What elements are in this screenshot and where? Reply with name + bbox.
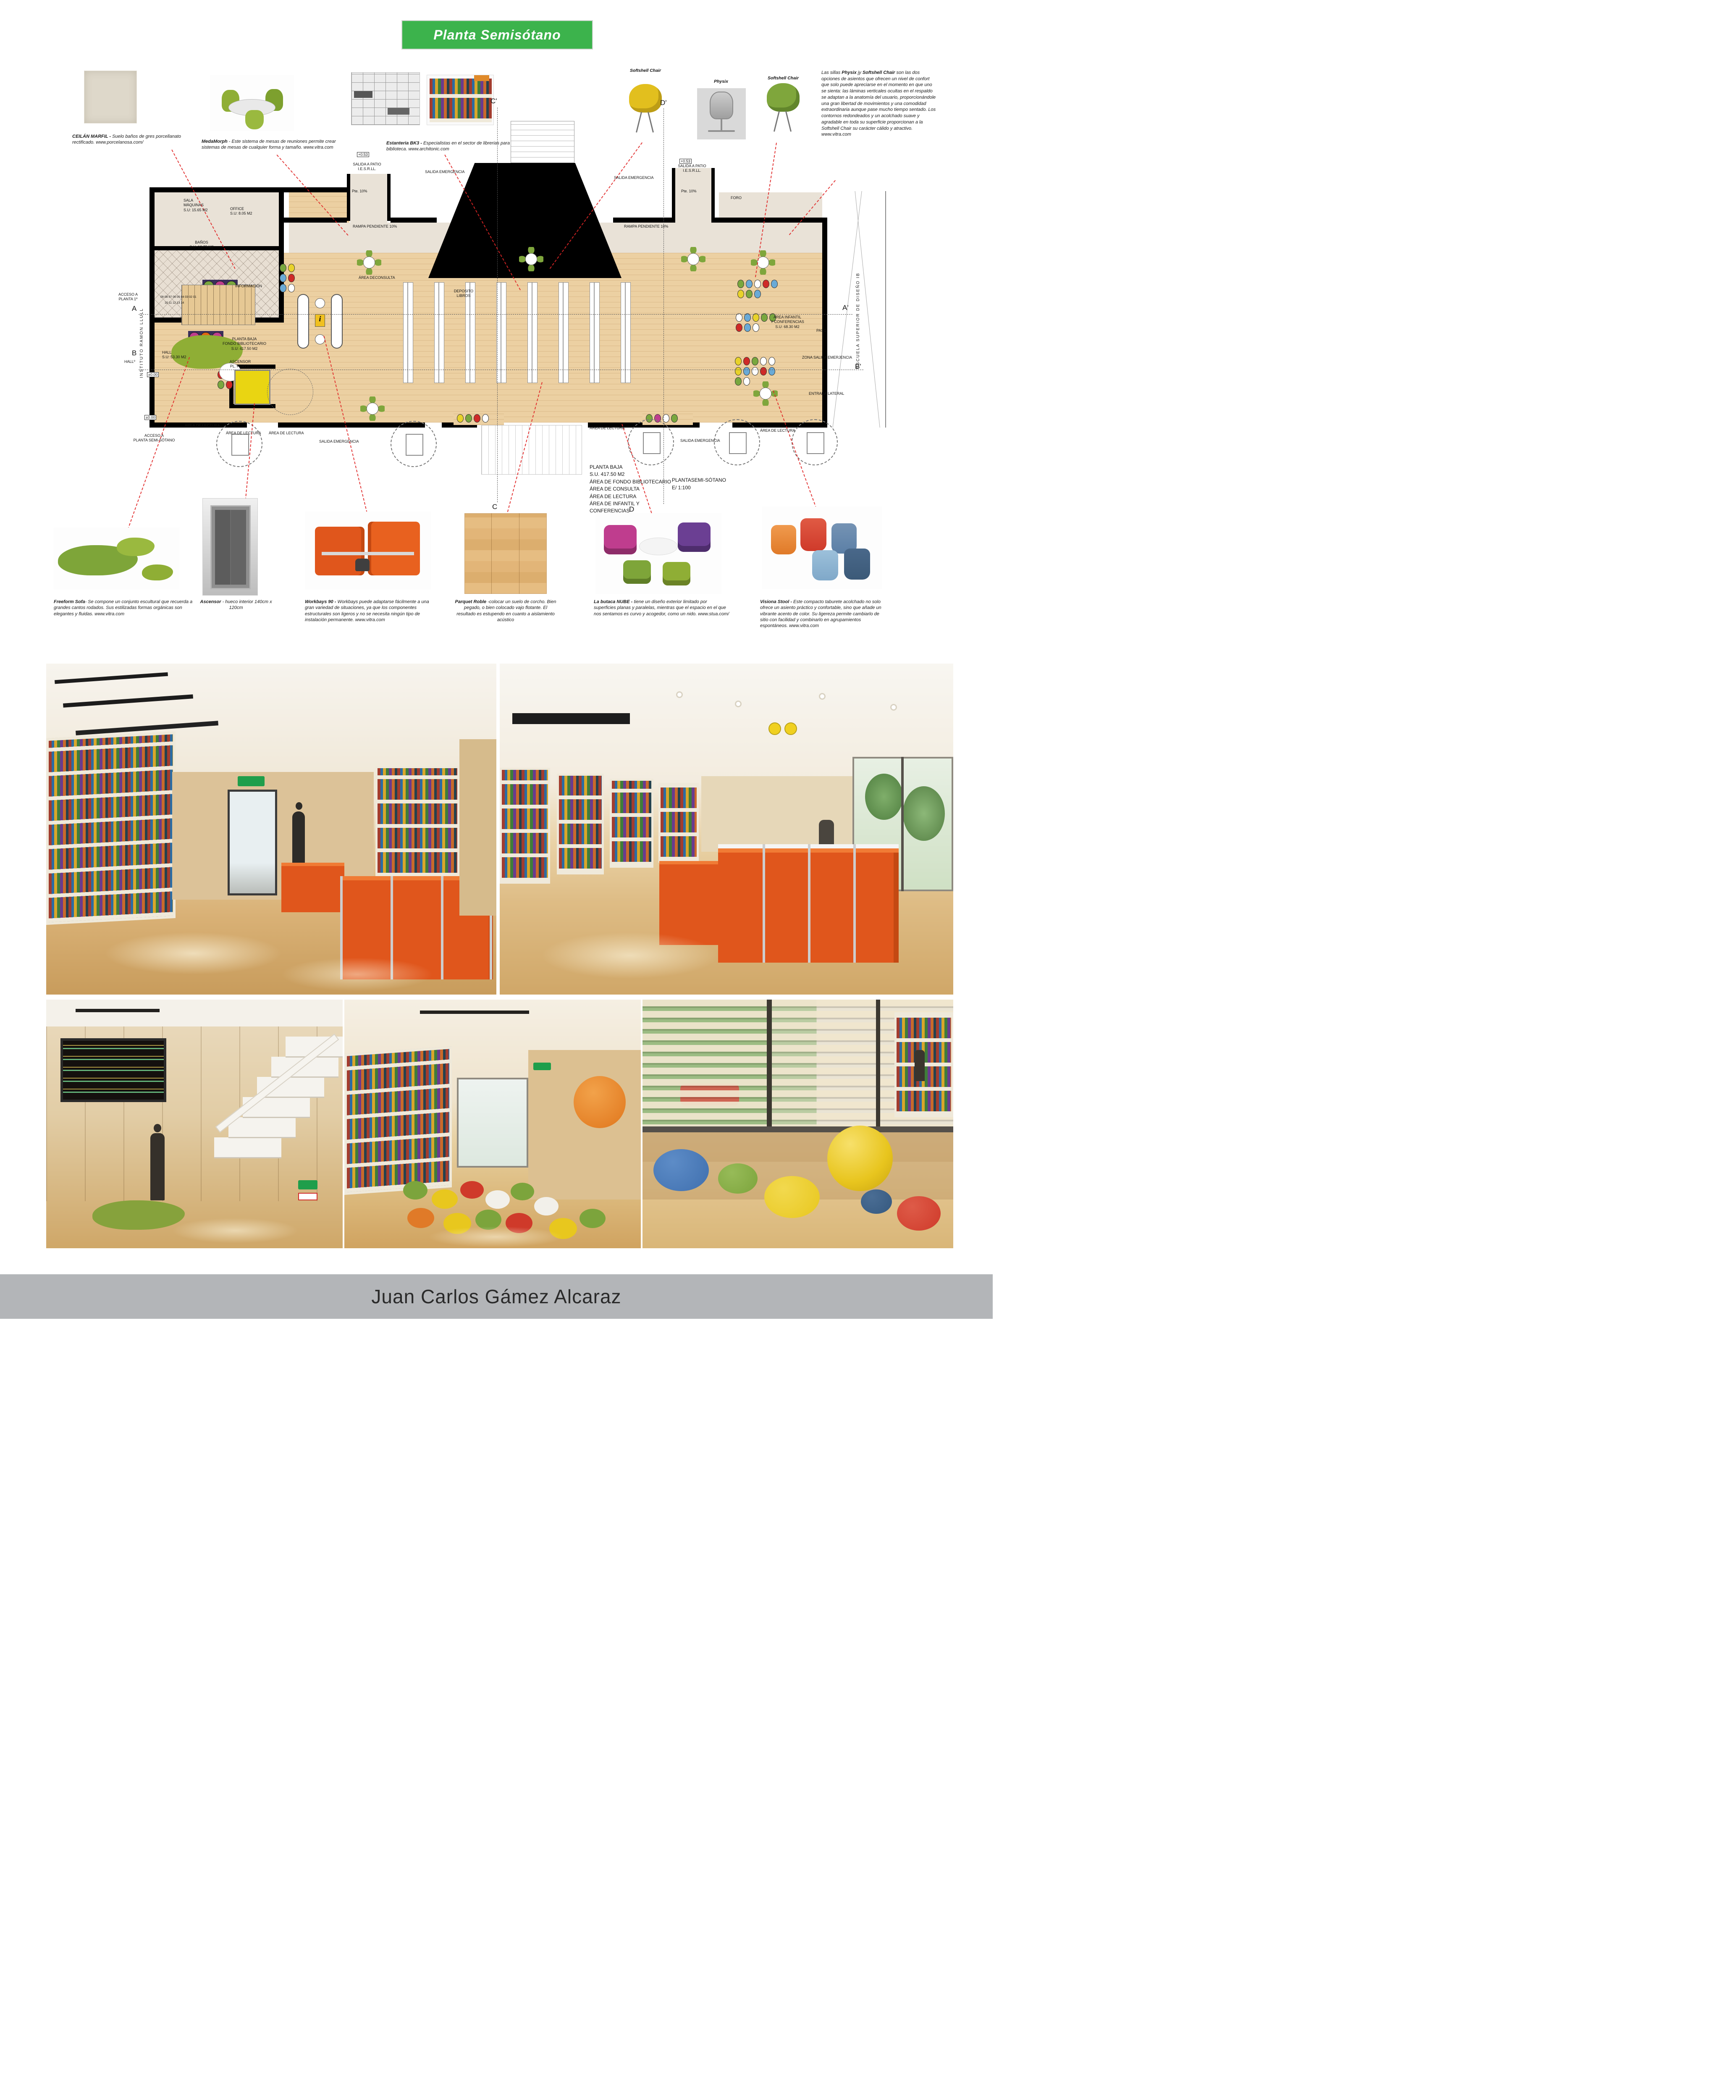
plan-label-pte10: Pte. 10%: [681, 189, 697, 194]
exit-sign: [298, 1180, 317, 1189]
bookshelf-row: [557, 774, 604, 874]
parquet-seam: [519, 513, 519, 594]
plan-round-table: [681, 247, 705, 271]
scale-block: PLANTASEMI-SÓTANO E/ 1:100: [672, 476, 747, 491]
info-icon-glyph: i: [319, 315, 321, 323]
section-marker: A: [132, 304, 136, 313]
ceiling-spot: [819, 693, 826, 700]
plan-book-stack: [434, 282, 444, 383]
section-marker: B: [132, 349, 136, 357]
plan-info-desk: i: [296, 292, 347, 355]
green-sofa: [92, 1200, 185, 1230]
nube-table: [639, 538, 678, 555]
plan-wall: [347, 174, 350, 221]
bk3-shelf-photo-gray: [351, 72, 420, 125]
orange-desk-main: [718, 844, 899, 963]
section-line-c: [497, 108, 498, 502]
plan-label-instituto: INSTITUTO RAMON LLULL: [139, 235, 144, 378]
plan-round-table: [519, 247, 543, 271]
person-head: [154, 1124, 161, 1132]
section-marker: C': [490, 97, 497, 105]
plan-label-acceso-p1: ACCESO A PLANTA 1º: [105, 292, 151, 302]
render-photo-reading-hall: [46, 664, 496, 995]
exit-door: [228, 790, 277, 895]
caption-parquet: Parquet Roble -colocar un suelo de corch…: [454, 599, 557, 623]
window-sill: [642, 1126, 953, 1132]
bookshelf-wall: [46, 732, 176, 925]
visiona-photo: [762, 507, 882, 589]
right-wall-wood: [459, 739, 496, 916]
chair-base: [708, 130, 735, 132]
para-seg: Las sillas: [821, 70, 842, 75]
freeform-shape: [117, 538, 155, 556]
ascensor-door-frame: [210, 505, 251, 589]
plan-label-ascensor: ASCENSOR PL. PISO 1º: [215, 360, 265, 369]
plan-label-consulta: ÁREA DECONSULTA: [359, 276, 395, 280]
tree-blob: [865, 774, 903, 820]
medamorph-chair: [245, 110, 264, 129]
window-frame: [876, 1000, 880, 1130]
plan-label-rampa: RAMPA PENDIENTE 10%: [353, 224, 397, 229]
stool-cluster: [734, 356, 776, 386]
plan-label-banos: BAÑOS S.U: 13.75 M2: [176, 240, 227, 250]
desk-post: [853, 844, 856, 963]
parquet-seam: [491, 513, 492, 594]
plan-label-lectura: ÁREA DE LECTURA: [226, 431, 261, 436]
display-screen: [60, 1038, 166, 1102]
chair-leg: [636, 112, 642, 132]
plan-label-lectura: ÁREA DE LECTURA: [590, 426, 625, 430]
plan-wall: [284, 187, 349, 192]
plan-book-stack: [621, 282, 631, 383]
floor-glow: [105, 932, 281, 974]
yellow-sphere-lamp: [827, 1126, 893, 1191]
plan-light-well: [391, 421, 437, 467]
floor-glow: [172, 1218, 298, 1243]
ceiling-light-slot: [76, 1009, 160, 1012]
plan-patio-stair: [511, 121, 574, 163]
chair-leg: [774, 111, 780, 131]
plan-label-informacion: INFORMACIÓN: [235, 284, 262, 289]
desk-post: [441, 876, 443, 979]
stool-cluster: [456, 413, 502, 423]
planta-baja-block: PLANTA BAJA S.U. 417.50 M2 ÁREA DE FONDO…: [590, 464, 682, 515]
para-seg: jy: [857, 70, 863, 75]
staircase: [214, 1016, 343, 1168]
caption-ascensor-name: Ascensor: [200, 599, 221, 604]
plan-label-entrada: ENTRADA LATERAL: [809, 391, 844, 396]
plan-wall: [149, 187, 285, 192]
pouf: [407, 1208, 434, 1228]
window-frame: [767, 1000, 772, 1130]
window-back: [457, 1078, 528, 1168]
plan-wall: [711, 168, 715, 221]
caption-workbays-name: Workbays 90 -: [305, 599, 337, 604]
plan-label-office: OFFICE S.U: 8.05 M2: [230, 207, 252, 216]
plan-label-lectura: ÁREA DE LECTURA: [185, 423, 220, 428]
plan-central-stair: [481, 425, 582, 475]
plan-wall: [711, 218, 827, 223]
workbays-pod: [368, 522, 420, 575]
caption-medamorph-name: MedaMorph: [202, 139, 228, 144]
plan-book-stack: [590, 282, 600, 383]
bookshelf-wall: [344, 1046, 452, 1195]
caption-ceilan: CEILÁN MARFIL - Suelo baños de gres porc…: [72, 134, 203, 146]
section-marker: A': [842, 303, 849, 312]
caption-visiona-name: Visiona Stool -: [760, 599, 793, 604]
caption-ascensor-text: - hueco interior 140cm x 120cm: [221, 599, 272, 610]
stool-cluster: [737, 279, 779, 299]
ceiling-spot: [676, 691, 683, 698]
info-desk-counter: [331, 294, 343, 349]
plan-label-hall-peq: HALLº: [124, 360, 135, 364]
render-photo-kids-area: [344, 1000, 641, 1248]
pouf: [403, 1181, 427, 1200]
softshell-right-label: Softshell Chair: [756, 76, 810, 81]
caption-freeform: Freeform Sofa- Se compone un conjunto es…: [54, 599, 193, 617]
plan-wall: [613, 218, 675, 223]
pouf: [460, 1181, 484, 1199]
plan-stair-numbers: 09 08 07 06 05 04 03 02 01: [160, 296, 197, 299]
desk-post: [763, 844, 765, 963]
plan-room-sala-maquinas: [155, 192, 279, 246]
level-tag: +0.53: [679, 159, 692, 164]
plan-label-salida-patio: SALIDA A PATIO I.E.S.R.LL.: [666, 164, 718, 173]
plan-wall: [284, 218, 347, 223]
footer-bar: Juan Carlos Gámez Alcaraz: [0, 1274, 993, 1319]
caption-workbays: Workbays 90 - Workbays puede adaptarse f…: [305, 599, 438, 623]
plan-label-escuela: ESCUELA SUPERIOR DE DISEÑO IB: [856, 230, 860, 369]
plan-label-lectura: ÁREA DE LECTURA: [269, 431, 304, 436]
floor-glow: [281, 958, 433, 991]
section-marker: C: [492, 502, 497, 511]
render-photo-window-bench: [642, 1000, 953, 1248]
plan-stair-left: [181, 285, 255, 325]
window-mullion: [901, 757, 904, 891]
render-photo-stacks-desks: [500, 664, 953, 995]
render-photo-stair-lounge: [46, 1000, 343, 1248]
caption-ceilan-name: CEILÁN MARFIL -: [72, 134, 112, 139]
plan-wall: [149, 187, 155, 428]
caption-bk3-name: Estanteria BK3 -: [386, 141, 423, 146]
plan-patio-stub-right: [675, 168, 711, 223]
chair-shell: [629, 84, 662, 113]
para-physix: Physix: [842, 70, 856, 75]
exit-sign: [533, 1063, 551, 1070]
plan-label-salida-emergencia: SALIDA EMERGENCIA: [425, 170, 465, 174]
cushion: [861, 1189, 892, 1214]
chairs-description: Las sillas Physix jy Softshell Chair son…: [821, 70, 938, 138]
caption-parquet-name: Parquet Roble: [455, 599, 487, 604]
plan-label-lectura: ÁREA DE LECTURA: [760, 428, 795, 433]
workbays-photo: [305, 512, 431, 590]
level-tag: ±0.00: [147, 372, 159, 377]
visiona-stool: [800, 518, 826, 551]
page-title: Planta Semisótano: [433, 27, 561, 43]
plan-label-planta-fondo: PLANTA BAJA FONDO BIBLIOTECARIO S.U: 417…: [210, 337, 279, 351]
plan-book-stack: [527, 282, 538, 383]
ascensor-door: [215, 510, 246, 585]
signage-bar: [512, 713, 630, 724]
plan-label-rampa: RAMPA PENDIENTE 10%: [624, 224, 668, 229]
floor-glow: [542, 932, 718, 979]
caption-visiona: Visiona Stool - Este compacto taburete a…: [760, 599, 889, 629]
softshell-chair-yellow-photo: [624, 82, 667, 136]
cushion: [897, 1196, 941, 1231]
caption-nube-name: La butaca NUBE -: [594, 599, 634, 604]
level-tag: ±0.00: [144, 415, 156, 420]
person-head: [296, 802, 302, 810]
section-line-d: [663, 108, 664, 504]
plan-wall: [387, 174, 391, 221]
ceiling-spot: [890, 704, 897, 711]
caption-bk3: Estanteria BK3 - Especialistas en el sec…: [386, 140, 522, 152]
plan-light-well: [714, 419, 760, 465]
para-softshell: Softshell Chair: [863, 70, 895, 75]
orange-desk: [281, 863, 344, 912]
plan-label-salida-emergencia: SALIDA EMERGENCIA: [319, 439, 359, 444]
nube-photo: [595, 513, 721, 594]
stair-step: [214, 1137, 281, 1158]
ascensor-photo: [202, 498, 258, 596]
nube-armchair: [604, 525, 637, 554]
caption-ascensor: Ascensor - hueco interior 140cm x 120cm: [194, 599, 278, 611]
plan-label-sala-maquinas: SALA MÁQUINAS S.U: 15.65 M2: [184, 198, 208, 213]
bookshelf-row: [610, 779, 653, 868]
caption-medamorph: MedaMorph - Este sistema de mesas de reu…: [202, 139, 336, 151]
orange-circle-panel: [574, 1076, 626, 1128]
chair-leg: [648, 112, 654, 132]
safety-sign: [298, 1193, 317, 1200]
bookshelf-mid: [375, 766, 459, 879]
person-silhouette: [915, 1050, 925, 1081]
plan-patio-stub-left: [350, 174, 387, 223]
workbays-desk: [322, 552, 414, 555]
ceiling-light-slot: [420, 1011, 529, 1014]
bk3-shelf-photo-color: [427, 75, 494, 125]
plan-elevator-swing: [267, 369, 313, 415]
caption-freeform-name: Freeform Sofa: [54, 599, 85, 604]
chair-back: [710, 92, 733, 119]
stair-step: [228, 1117, 296, 1138]
chair-leg: [785, 111, 792, 131]
plan-round-table: [751, 250, 775, 275]
desk-post: [808, 844, 810, 963]
nube-armchair: [623, 560, 651, 584]
medamorph-photo: [210, 75, 294, 131]
plan-label-foro: FORO: [731, 196, 742, 200]
bk3-color-books: [430, 79, 492, 122]
plan-label-salida-emergencia: SALIDA EMERGENCIA: [614, 176, 654, 180]
pouf: [511, 1183, 534, 1200]
plan-round-table: [360, 396, 385, 421]
level-tag: +0.53: [357, 152, 369, 157]
cushion: [764, 1176, 820, 1218]
plan-book-stack: [559, 282, 569, 383]
bookshelf-row: [658, 783, 699, 863]
exit-sign: [238, 776, 265, 786]
info-desk-chair: [315, 298, 325, 308]
section-marker: D': [660, 98, 667, 107]
orange-desk-wing: [659, 861, 718, 945]
tree-blob: [903, 786, 945, 841]
pouf: [432, 1189, 458, 1209]
section-line-b: [139, 370, 863, 370]
plan-wall: [279, 187, 284, 323]
parquet-photo: [464, 513, 547, 594]
cushion: [653, 1149, 709, 1191]
bk3-books: [354, 91, 372, 98]
plan-round-table: [357, 250, 381, 275]
info-desk-counter: [297, 294, 309, 349]
plan-label-hall: HALL S.U: 53.30 M2: [162, 350, 186, 360]
bk3-books: [388, 108, 409, 115]
plan-wall: [672, 168, 675, 221]
softshell-chair-green-photo: [762, 81, 805, 135]
physix-chair-photo: [697, 88, 746, 139]
physix-label: Physix: [698, 79, 744, 84]
workbays-chair: [355, 559, 370, 571]
chair-shell: [767, 83, 800, 112]
plan-book-stack: [496, 282, 506, 383]
info-icon: i: [315, 314, 325, 327]
plan-wall: [391, 218, 437, 223]
stool-cluster: [279, 263, 301, 293]
author-name: Juan Carlos Gámez Alcaraz: [371, 1285, 621, 1308]
title-banner: Planta Semisótano: [401, 20, 593, 50]
ceiling-spot: [735, 701, 742, 707]
freeform-ottoman: [142, 564, 173, 580]
freeform-sofa-photo: [54, 528, 180, 590]
plan-elevator: [234, 370, 270, 405]
bookshelf-row: [500, 768, 550, 884]
softshell-left-label: Softshell Chair: [614, 68, 677, 73]
ceilan-tile-photo: [84, 71, 137, 123]
plan-label-deposito: DEPOSITO LIBROS: [446, 289, 481, 299]
nube-armchair: [663, 562, 690, 585]
plan-label-acceso-semi: ACCESO A PLANTA SEMI-SÓTANO: [116, 433, 192, 443]
bk3-orange-box: [474, 75, 489, 81]
section-line-a: [139, 314, 852, 315]
cushion: [718, 1163, 758, 1194]
caption-nube: La butaca NUBE - tiene un diseño exterio…: [594, 599, 730, 617]
ceiling-light-slot: [63, 694, 193, 708]
para-seg: son las dos opciones de asientos que ofr…: [821, 70, 936, 137]
plan-stair-numbers: 10 11 12 13 14: [165, 302, 184, 305]
plan-label-infantil: ÁREA INFANTIL Y CONFERENCIAS S.U: 68.30 …: [752, 315, 823, 329]
plan-light-well: [628, 419, 674, 465]
chair-post: [721, 119, 722, 130]
pouf: [580, 1209, 606, 1228]
ceiling-light-slot: [55, 672, 168, 684]
visiona-stool: [844, 549, 870, 580]
person-silhouette: [150, 1133, 165, 1200]
plan-label-salida-patio: SALIDA A PATIO I.E.S.R.LL.: [341, 162, 393, 172]
floor-glow: [428, 1226, 563, 1247]
info-sign-round: [784, 722, 797, 735]
plan-light-well: [216, 421, 262, 467]
right-wood-wall: [528, 1050, 641, 1200]
plan-book-stack: [403, 282, 413, 383]
pouf: [534, 1197, 559, 1215]
plan-label-paso: PASO: [816, 328, 826, 333]
visiona-stool: [812, 550, 838, 580]
nube-armchair: [678, 522, 711, 552]
pouf: [485, 1190, 510, 1209]
plan-label-zona-salida: ZONA SALIDA EMERJENCIA: [802, 355, 852, 360]
info-sign-round: [768, 722, 781, 735]
plan-label-salida-emergencia: SALIDA EMERGENCIA: [680, 438, 720, 443]
visiona-stool: [771, 525, 796, 554]
plan-label-pte10: Pte. 10%: [352, 189, 367, 194]
presentation-board: Planta Semisótano CEILÁN MARFIL - Suelo …: [0, 0, 993, 1319]
